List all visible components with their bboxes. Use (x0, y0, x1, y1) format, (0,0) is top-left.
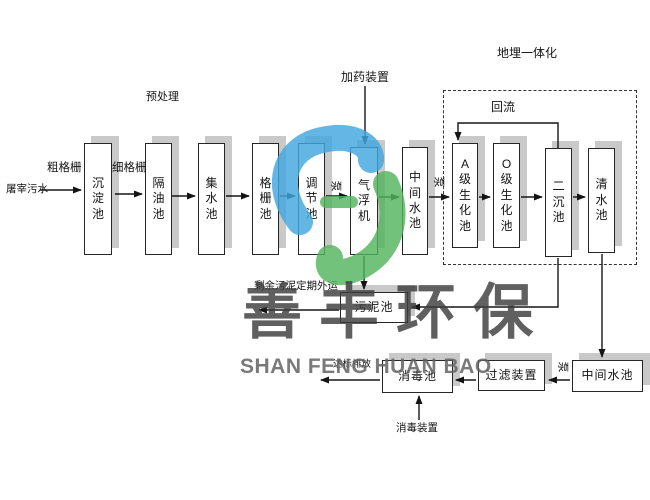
flow-diagram: 善丰环保 SHAN FENG HUAN BAO 沉 淀 池隔 油 池集 水 池格… (0, 0, 650, 500)
label-reflux: 回流 (491, 101, 515, 114)
label-dosing-device: 加药装置 (341, 71, 389, 84)
label-buried-integration: 地埋一体化 (497, 47, 557, 60)
label-pump-1: 泵 (329, 181, 341, 192)
label-influent: 屠宰污水 (6, 184, 48, 196)
label-sludge-out: 剩余污泥定期外运 (254, 281, 338, 293)
connector-lines (0, 0, 650, 500)
label-pump-2: 泵 (432, 177, 444, 188)
label-fine-screen: 细格栅 (112, 162, 147, 175)
connector-reflux-line (458, 123, 558, 148)
label-disinfect-device: 消毒装置 (396, 423, 438, 435)
label-pretreatment: 预处理 (146, 91, 179, 103)
label-pump-3: 泵 (556, 362, 568, 373)
connector-secondary-down-to-sludge (412, 258, 558, 307)
label-discharge: 达标排放 (333, 360, 371, 370)
label-coarse-screen: 粗格栅 (47, 162, 82, 175)
